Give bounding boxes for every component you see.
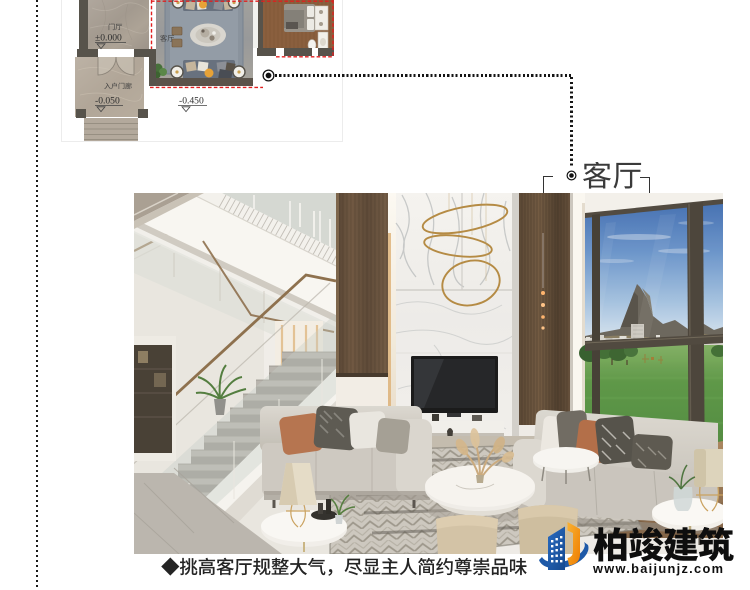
svg-text:±0.000: ±0.000	[95, 33, 122, 44]
svg-text:-0.050: -0.050	[95, 96, 120, 107]
svg-text:-0.450: -0.450	[179, 96, 204, 107]
